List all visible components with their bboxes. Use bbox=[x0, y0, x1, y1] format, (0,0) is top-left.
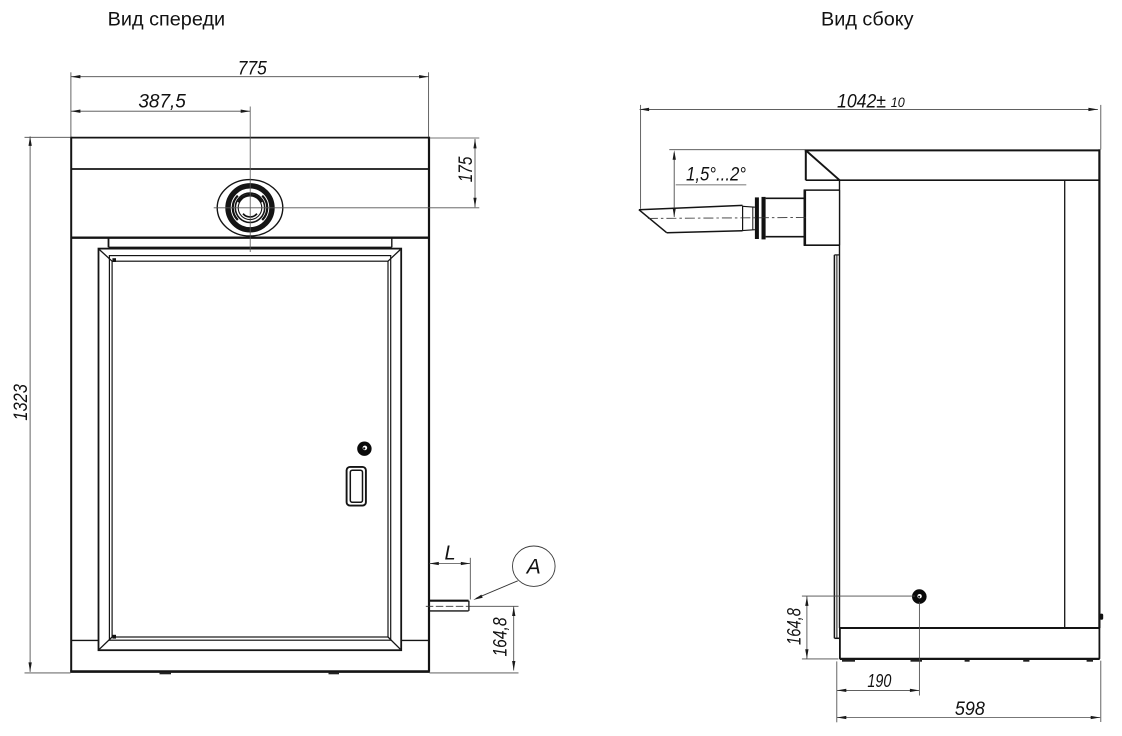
svg-text:1042±: 1042± bbox=[837, 90, 886, 112]
svg-text:L: L bbox=[444, 543, 455, 565]
svg-text:Вид спереди: Вид спереди bbox=[108, 8, 226, 30]
svg-text:164,8: 164,8 bbox=[785, 608, 806, 645]
svg-text:598: 598 bbox=[955, 698, 985, 720]
svg-text:164,8: 164,8 bbox=[491, 617, 512, 656]
svg-text:775: 775 bbox=[238, 57, 267, 79]
svg-text:1323: 1323 bbox=[11, 384, 32, 421]
svg-text:10: 10 bbox=[891, 95, 905, 110]
svg-text:1,5°...2°: 1,5°...2° bbox=[686, 165, 746, 186]
svg-text:A: A bbox=[525, 555, 541, 578]
svg-text:Вид сбоку: Вид сбоку bbox=[821, 8, 914, 30]
svg-text:175: 175 bbox=[456, 156, 477, 182]
svg-text:190: 190 bbox=[867, 670, 892, 691]
svg-text:387,5: 387,5 bbox=[138, 91, 186, 113]
